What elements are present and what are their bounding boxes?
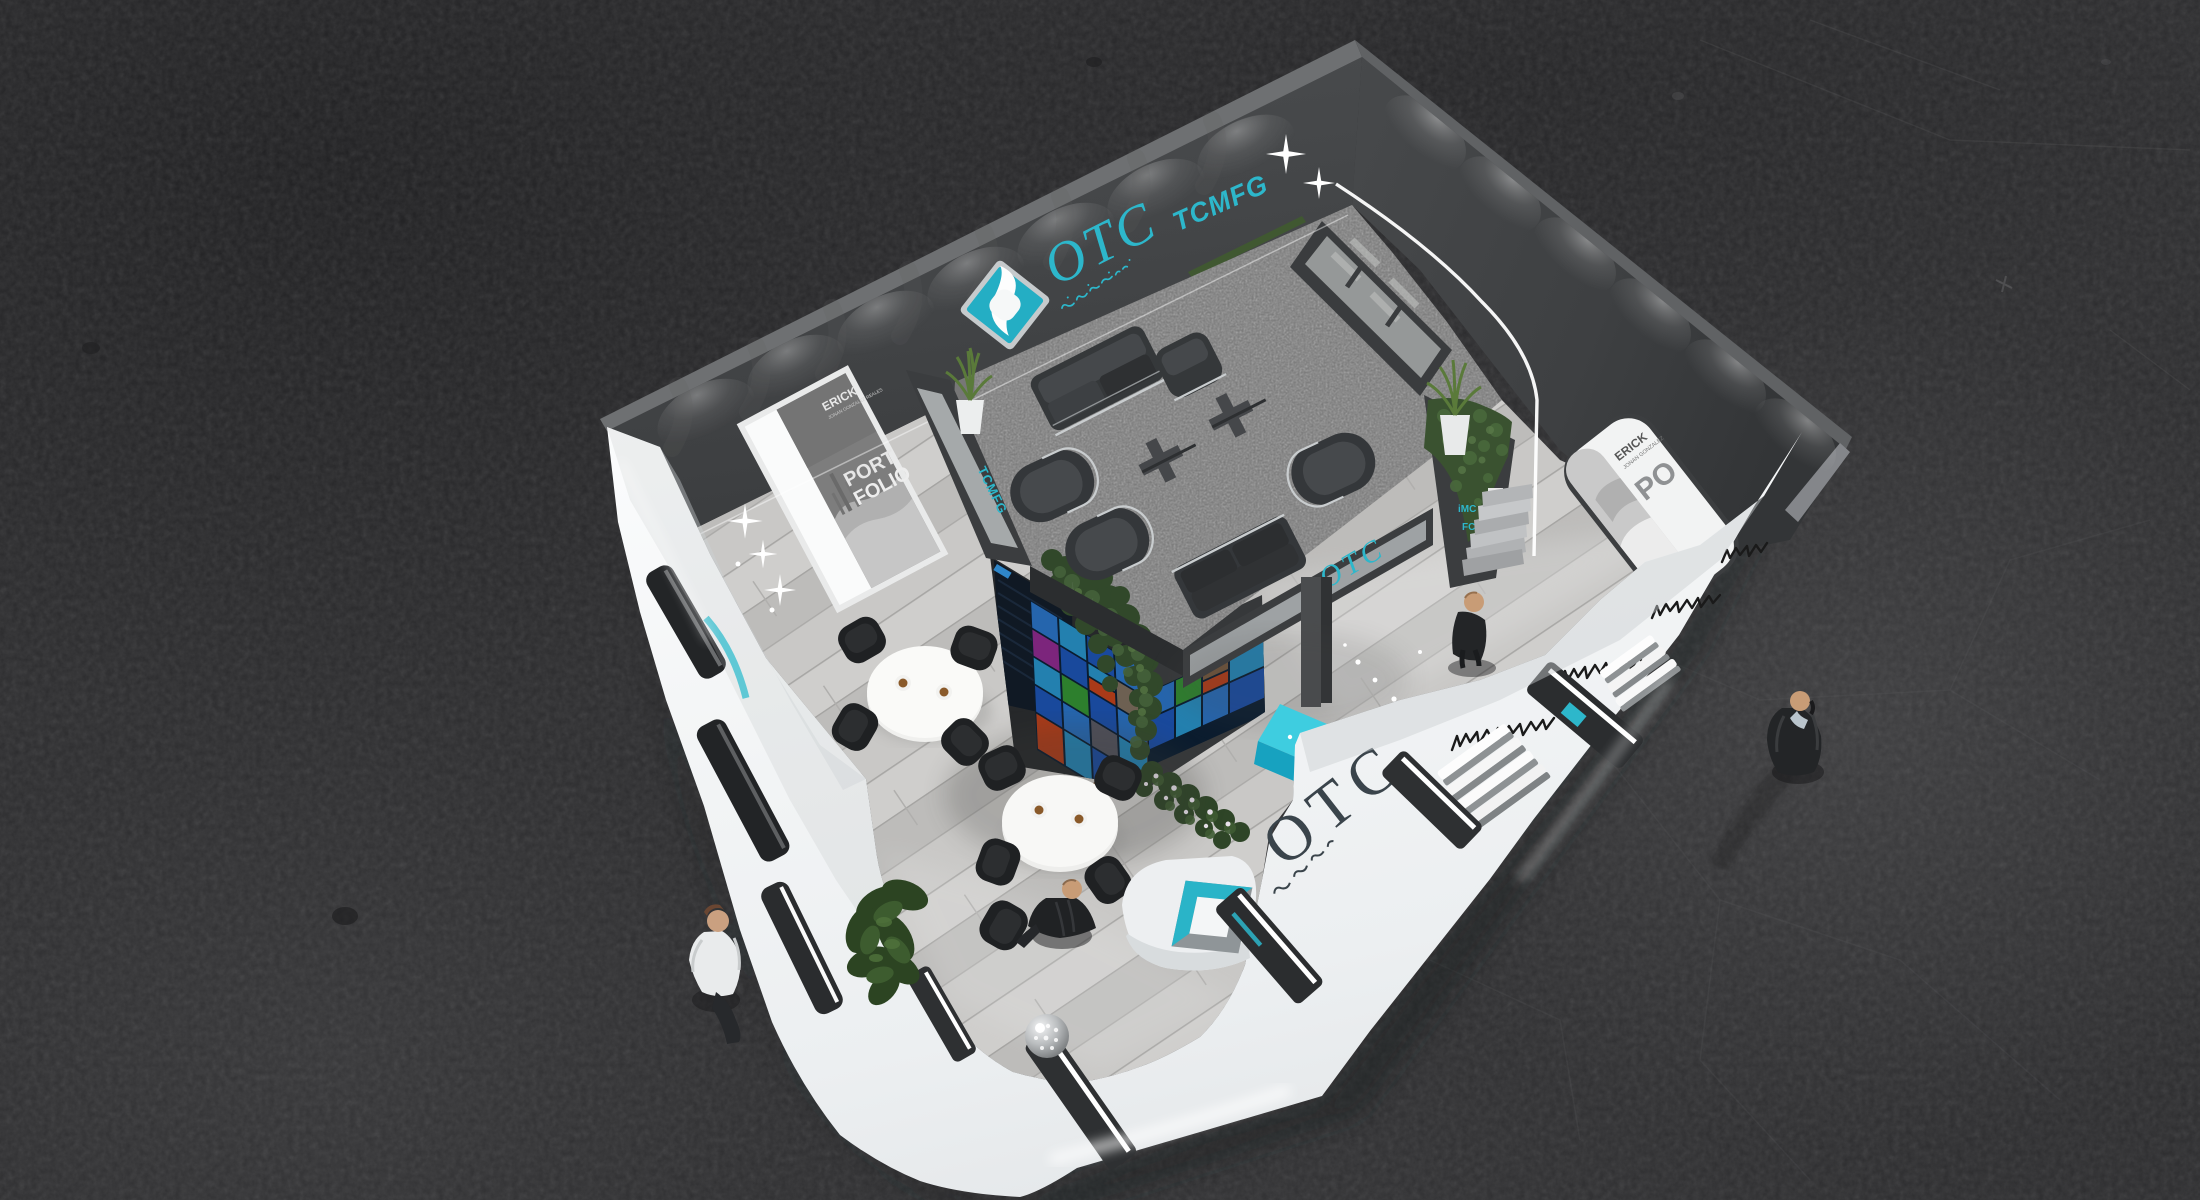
- svg-text:FC: FC: [1462, 522, 1475, 533]
- svg-text:iMC: iMC: [1458, 504, 1476, 515]
